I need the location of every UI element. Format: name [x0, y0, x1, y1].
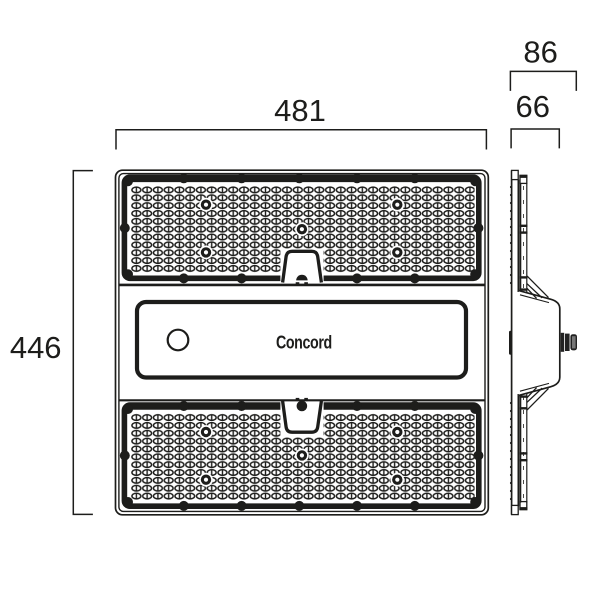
svg-text:446: 446 — [10, 330, 62, 365]
svg-text:86: 86 — [523, 35, 557, 70]
svg-text:Concord: Concord — [276, 333, 332, 353]
svg-text:66: 66 — [516, 89, 550, 124]
svg-text:481: 481 — [274, 93, 326, 128]
